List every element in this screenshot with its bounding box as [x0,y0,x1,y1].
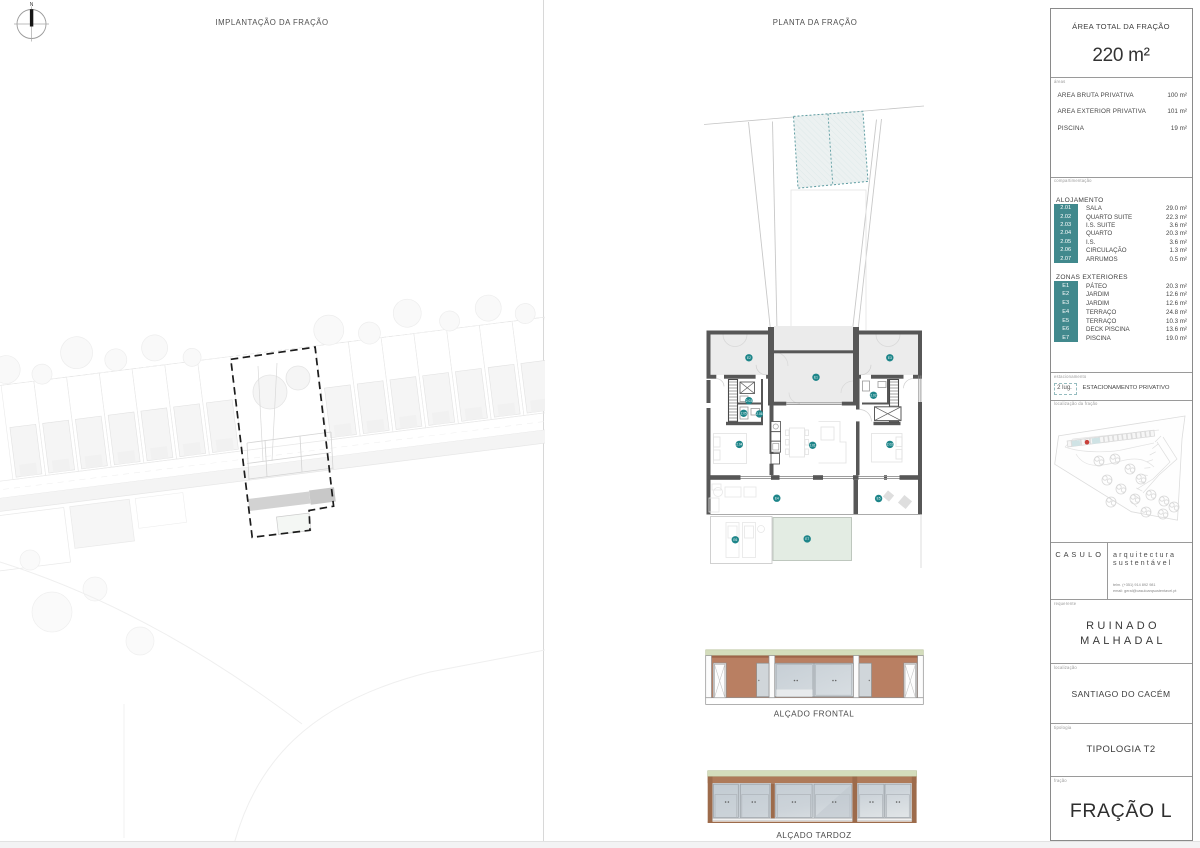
svg-text:2.05: 2.05 [741,412,747,416]
svg-text:2.04: 2.04 [736,443,742,447]
svg-text:2.06: 2.06 [756,412,762,416]
svg-text:ALÇADO TARDOZ: ALÇADO TARDOZ [776,831,851,840]
svg-text:2.02: 2.02 [887,443,893,447]
svg-text:2.01: 2.01 [809,444,815,448]
svg-text:E3: E3 [888,356,892,360]
svg-text:E4: E4 [775,496,779,500]
svg-text:E5: E5 [877,497,881,501]
svg-text:2.02: 2.02 [870,394,876,398]
svg-text:E6: E6 [733,538,737,542]
svg-text:ALÇADO FRONTAL: ALÇADO FRONTAL [774,710,855,719]
svg-text:N: N [30,2,34,8]
svg-text:E7: E7 [805,537,809,541]
svg-text:E1: E1 [814,376,818,380]
svg-text:E2: E2 [747,356,751,360]
svg-text:2.03: 2.03 [746,399,752,403]
